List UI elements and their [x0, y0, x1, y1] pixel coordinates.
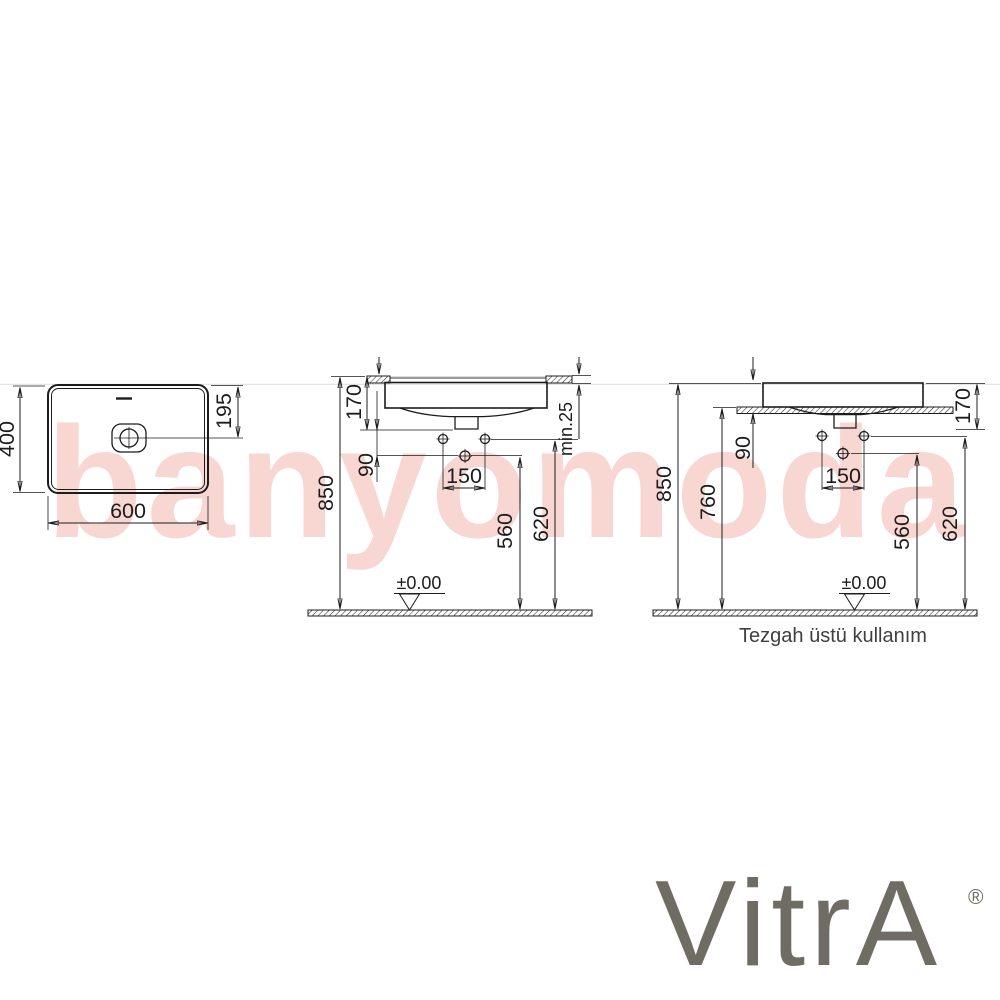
datum-label: ±0.00	[397, 573, 442, 593]
dim-label-620: 620	[938, 506, 962, 542]
floor-datum: ±0.00	[394, 573, 445, 610]
dim-label-150: 150	[825, 464, 861, 488]
drain-stub	[834, 415, 856, 428]
dim-label-150: 150	[446, 464, 482, 488]
basin-body	[763, 383, 923, 407]
technical-drawing: 400 600 195	[0, 0, 1000, 1000]
dim-drain-offset-195: 195	[211, 386, 243, 438]
dim-label-560: 560	[890, 514, 914, 550]
top-view: 400 600 195	[0, 385, 243, 530]
fixing-holes	[816, 430, 871, 461]
registered-trademark-icon: ®	[968, 887, 983, 908]
dim-label-760: 760	[696, 484, 720, 520]
floor-line	[653, 610, 977, 616]
vitra-wordmark: VitrA	[655, 855, 942, 991]
vitra-logo: VitrA ®	[655, 862, 942, 984]
dim-label-620: 620	[529, 506, 553, 542]
dim-depth-400: 400	[0, 386, 45, 493]
dim-label-90: 90	[354, 453, 378, 477]
counter-section-right	[546, 376, 572, 383]
bowl-profile	[400, 408, 534, 417]
dim-counter-min25: min.25	[556, 357, 591, 456]
dim-label-560: 560	[493, 513, 517, 549]
dim-label-400: 400	[0, 421, 19, 457]
dim-counter-height-760: 760	[696, 408, 736, 610]
basin-outer-outline	[48, 385, 208, 493]
dim-label-195: 195	[212, 393, 236, 429]
fixing-holes	[437, 433, 492, 464]
floor-line	[308, 610, 592, 616]
dim-label-90: 90	[731, 436, 755, 460]
basin-inner-rim	[52, 389, 205, 490]
front-view-semi-recessed: 170 90 min.25 850	[308, 357, 592, 616]
front-view-countertop: 850 760 90 170 560	[652, 357, 985, 647]
dim-basin-height-170: 170	[342, 357, 453, 430]
basin-body	[385, 383, 547, 409]
dim-label-170: 170	[951, 388, 975, 424]
spec-sheet: banyomoda 400	[0, 0, 1000, 1000]
view-caption: Tezgah üstü kullanım	[739, 625, 927, 647]
dim-label-850: 850	[652, 466, 676, 502]
dim-width-600: 600	[48, 496, 208, 530]
drain-stub	[455, 417, 478, 429]
dim-label-170: 170	[342, 384, 366, 420]
dim-label-min25: min.25	[556, 402, 576, 456]
counter-section	[737, 407, 953, 414]
datum-label: ±0.00	[842, 573, 887, 593]
dim-label-850: 850	[314, 475, 338, 511]
dim-basin-to-hole-90: 90	[354, 391, 458, 482]
floor-datum: ±0.00	[839, 573, 890, 610]
dim-label-600: 600	[110, 499, 146, 523]
